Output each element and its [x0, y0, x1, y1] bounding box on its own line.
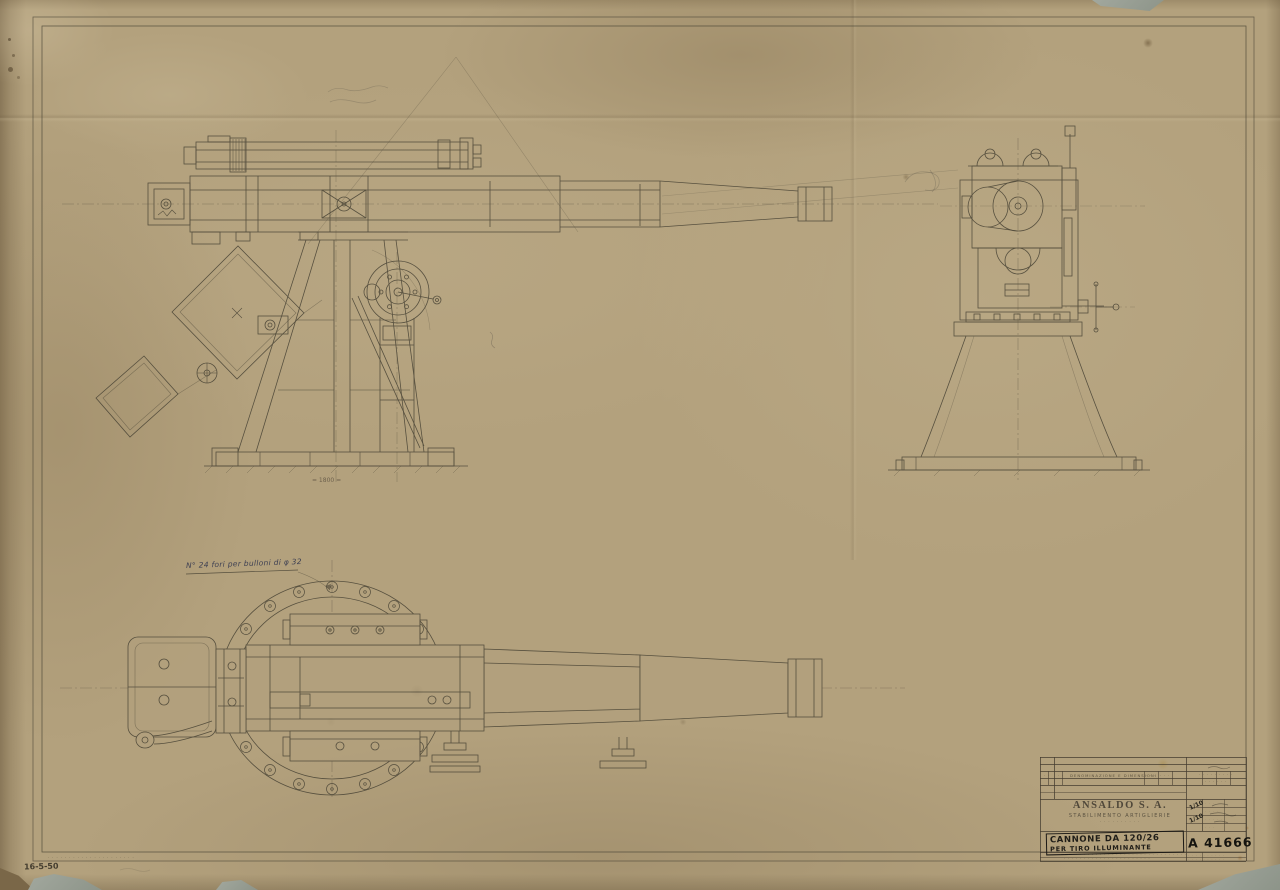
company-name: ANSALDO S. A. — [1054, 800, 1186, 811]
tb-footnote-line2: · · · · · · · · · · · · · · · · · · · · … — [1064, 857, 1151, 861]
tb-side-row-2: · · · · — [1205, 809, 1219, 813]
tb-header-denominazione: DENOMINAZIONE E DIMENSIONI — [1070, 773, 1144, 778]
tb-sub-row-1: · · · · · · · · · · — [1188, 853, 1225, 857]
tb-side-row-1: · · · — [1205, 801, 1215, 805]
tb-header-cell-1: · · — [1041, 774, 1053, 778]
rear-elevation-view — [888, 126, 1150, 480]
border-frame — [33, 17, 1254, 861]
drawing-number: A 41666 — [1188, 834, 1246, 850]
tb-header-cell-4: · · · — [1145, 774, 1157, 778]
tb-header-right-bottom: · · · · · · — [1188, 780, 1244, 784]
plan-view — [60, 560, 905, 800]
tb-header-cell-5: · · · — [1159, 774, 1171, 778]
tb-side-row-3: · · · · · — [1205, 817, 1223, 821]
bottom-left-print-stamp: · · · · · · · · · · · · · · · · · · · · … — [48, 856, 135, 860]
side-elevation-view — [62, 57, 958, 482]
bottom-left-date: 16-5-50 — [24, 862, 59, 872]
base-width-dimension: = 1800 = — [312, 477, 341, 484]
tb-header-cell-2: · · — [1055, 774, 1067, 778]
tb-sub-row-2: · · · · · · · · · · — [1188, 857, 1225, 861]
company-division: STABILIMENTO ARTIGLIERIE — [1054, 813, 1186, 819]
tb-header-right-top: · · · · · · · · · — [1188, 773, 1244, 777]
tb-footnote-line1: · · · · · · · · · · · · · · · · · · · · … — [1060, 853, 1187, 857]
tb-side-row-4: · · · — [1205, 825, 1215, 829]
blueprint-sheet: N° 24 fori per bulloni di φ 32 = 1800 = … — [0, 0, 1280, 890]
company-address: · · · · · · · · · · — [1054, 820, 1186, 824]
title-block: · · · · DENOMINAZIONE E DIMENSIONI · · ·… — [1040, 757, 1246, 861]
